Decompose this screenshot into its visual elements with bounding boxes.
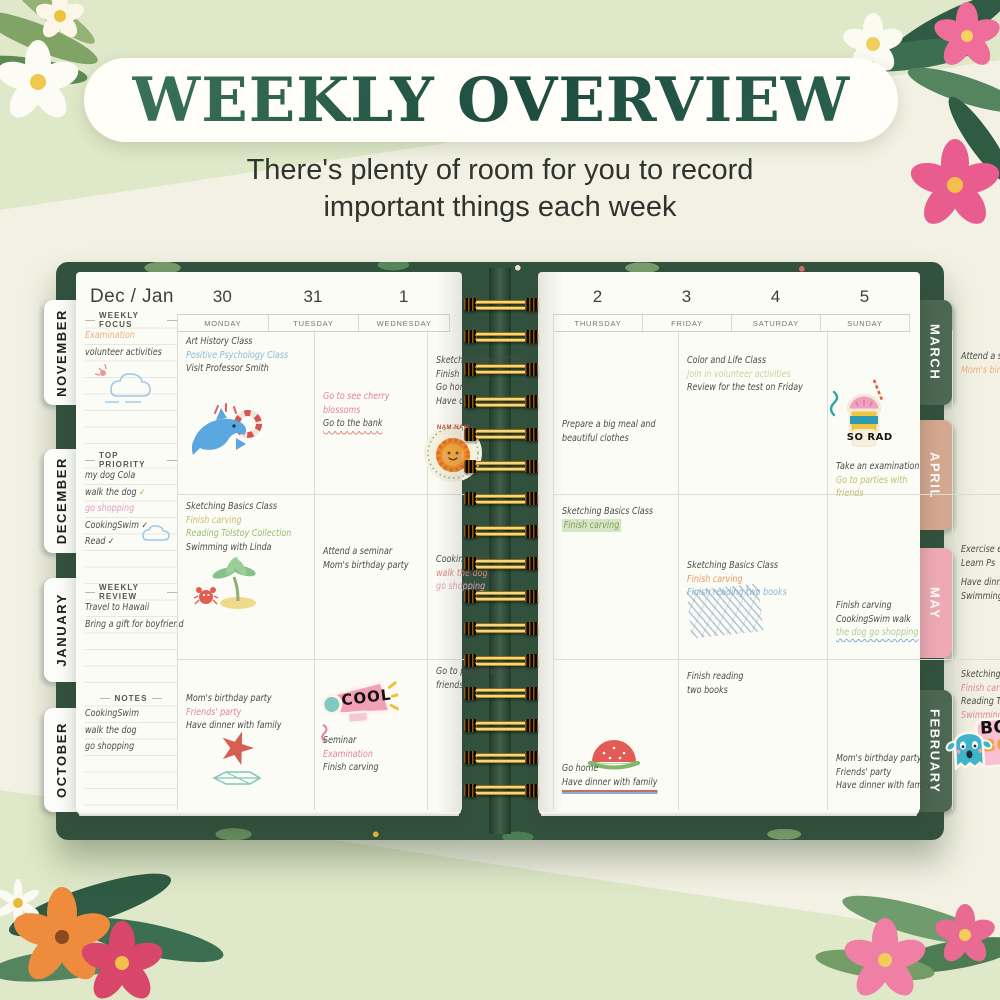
spiral-binding <box>464 297 538 798</box>
handwritten-entry: walk the dog ✓ <box>85 485 145 502</box>
handwritten-entry: Read ✓ <box>85 534 114 551</box>
date-number: 30 <box>177 287 268 307</box>
handwritten-entry: Finish reading <box>687 670 743 684</box>
day-name: TUESDAY <box>269 315 360 331</box>
handwritten-entry: Finish carving <box>562 519 621 533</box>
handwritten-entry: Examination <box>85 328 135 345</box>
cell-tuesday-row3: COOL SeminarExaminationFinish carving <box>315 660 429 810</box>
ghost-booh-sticker: BOOH! BOOH! <box>943 713 1000 778</box>
handwritten-entry: Go to parties with <box>836 474 907 488</box>
handwritten-entry: friends <box>436 679 464 693</box>
handwritten-entry: Sketching Basics Class <box>562 505 653 519</box>
section-weekly-focus: WEEKLY FOCUS Examinationvolunteer activi… <box>85 312 177 452</box>
cloud-doodle <box>137 520 171 542</box>
handwritten-entry: Mom's birthday party <box>961 364 1000 378</box>
so-rad-drink-sticker: SO RAD <box>828 378 908 458</box>
red-hibiscus-flower <box>78 921 166 1000</box>
tab-november: NOVEMBER <box>44 300 78 405</box>
handwritten-entry: Seminar <box>323 734 356 748</box>
handwritten-entry: Exercise every day <box>961 543 1000 557</box>
handwritten-entry: Finish carving <box>687 573 743 587</box>
handwritten-entry: Color and Life Class <box>687 354 766 368</box>
handwritten-entry: Mom's birthday party <box>186 692 272 706</box>
handwritten-entry: Finish carving <box>961 682 1000 696</box>
cell-saturday-row3: Mom's birthday partyFriends' partyHave d… <box>828 660 953 810</box>
section-top-priority: TOP PRIORITY my dog Colawalk the dog ✓go… <box>85 452 177 584</box>
cell-monday-row2: Sketching Basics ClassFinish carvingRead… <box>178 495 315 660</box>
cell-friday-row2: Sketching Basics ClassFinish carvingFini… <box>679 495 828 660</box>
date-row: 2 3 4 5 <box>553 284 909 310</box>
cell-thursday-row3: Go homeHave dinner with family <box>554 660 679 810</box>
cloud-sun-doodle <box>89 356 165 406</box>
handwritten-entry: CookingSwim <box>85 706 139 723</box>
weekly-grid-right: Prepare a big meal andbeautiful clothes … <box>553 330 910 810</box>
handwritten-entry: beautiful clothes <box>562 432 629 446</box>
tab-label: OCTOBER <box>54 722 69 798</box>
cell-sunday-row3: Sketching Basics ClassFinish carvingRead… <box>953 660 1000 810</box>
handwritten-entry: Examination <box>323 748 373 762</box>
handwritten-entry: Friends' party <box>186 706 241 720</box>
tab-october: OCTOBER <box>44 708 78 812</box>
day-name: THURSDAY <box>554 315 643 331</box>
date-number: 4 <box>731 287 820 307</box>
handwritten-entry: Positive Psychology Class <box>186 349 288 363</box>
date-number: 1 <box>358 287 449 307</box>
cell-sunday-row2: Exercise every dayLearn PsHave dinner wi… <box>953 495 1000 660</box>
handwritten-entry: Review for the test on Friday <box>687 381 803 395</box>
section-title: TOP PRIORITY <box>85 452 177 468</box>
handwritten-entry: Attend a seminar <box>323 545 392 559</box>
date-row: 30 31 1 <box>177 284 449 310</box>
subtitle: There's plenty of room for you to record… <box>0 152 1000 226</box>
date-number: 31 <box>268 287 359 307</box>
handwritten-entry: Finish carving <box>323 761 379 775</box>
tab-label: JANUARY <box>54 593 69 667</box>
handwritten-entry: Travel to Hawaii <box>85 600 149 617</box>
subtitle-line-1: There's plenty of room for you to record <box>0 152 1000 189</box>
day-name: FRIDAY <box>643 315 732 331</box>
white-hibiscus-flower <box>0 40 82 124</box>
handwritten-entry: CookingSwim walk <box>836 613 911 627</box>
handwritten-entry: blossoms <box>323 404 360 418</box>
cell-saturday-row1: SO RAD Take an examinationGo to parties … <box>828 330 953 495</box>
date-number: 3 <box>642 287 731 307</box>
handwritten-entry: Reading Tolstoy Collection <box>961 695 1000 709</box>
handwritten-entry: the dog go shopping <box>836 626 918 640</box>
cell-thursday-row2: Sketching Basics ClassFinish carving <box>554 495 679 660</box>
tab-label: DECEMBER <box>54 457 69 544</box>
dolphin-sticker <box>190 398 266 468</box>
handwritten-entry: Have dinner with family <box>562 776 657 791</box>
handwritten-entry: Mom's birthday party <box>323 559 409 573</box>
handwritten-entry: Swimming with Linda <box>186 541 272 555</box>
pink-hibiscus-flower <box>931 2 1000 70</box>
handwritten-entry: Sketching Basics Class <box>186 500 277 514</box>
planner-right-page: 2 3 4 5 THURSDAY FRIDAY SATURDAY SUNDAY … <box>538 272 920 812</box>
planner-left-page: Dec / Jan 30 31 1 MONDAY TUESDAY WEDNESD… <box>76 272 462 812</box>
cell-sunday-row1: Attend a seminarMom's birthday party <box>953 330 1000 495</box>
blue-scribble-doodle <box>687 583 764 638</box>
date-number: 5 <box>820 287 909 307</box>
subtitle-line-2: important things each week <box>0 189 1000 226</box>
day-name: WEDNESDAY <box>359 315 450 331</box>
handwritten-entry: go shopping <box>85 739 134 756</box>
handwritten-entry: Art History Class <box>186 335 252 349</box>
handwritten-entry: my dog Cola <box>85 468 135 485</box>
section-weekly-review: WEEKLY REVIEW Travel to HawaiiBring a gi… <box>85 584 177 690</box>
cell-saturday-row2: Finish carvingCookingSwim walkthe dog go… <box>828 495 953 660</box>
so-rad-sticker-label: SO RAD <box>841 432 899 443</box>
cell-tuesday-row1: Go to see cherryblossomsGo to the bank <box>315 330 429 495</box>
cool-megaphone-sticker: COOL <box>319 679 401 732</box>
date-number: 2 <box>553 287 642 307</box>
day-name: SUNDAY <box>821 315 910 331</box>
pink-hibiscus-flower <box>841 918 929 1000</box>
handwritten-entry: two books <box>687 684 728 698</box>
cell-monday-row1: Art History ClassPositive Psychology Cla… <box>178 330 315 495</box>
handwritten-entry: Take an examination <box>836 460 919 474</box>
handwritten-entry: Friends' party <box>836 766 891 780</box>
title-banner: WEEKLY OVERVIEW <box>84 58 898 142</box>
plumeria-flower <box>34 0 86 41</box>
handwritten-entry: Join in volunteer activities <box>687 368 791 382</box>
weekly-grid-left: Art History ClassPositive Psychology Cla… <box>177 330 450 810</box>
month-label: Dec / Jan <box>90 286 174 308</box>
handwritten-entry: Have dinner with family <box>961 576 1000 590</box>
cell-thursday-row1: Prepare a big meal andbeautiful clothes <box>554 330 679 495</box>
orange-hibiscus-flower <box>10 887 114 986</box>
section-title: WEEKLY REVIEW <box>85 584 177 600</box>
handwritten-entry: Reading Tolstoy Collection <box>186 527 291 541</box>
handwritten-entry: Finish carving <box>836 599 892 613</box>
page-title: WEEKLY OVERVIEW <box>132 65 851 136</box>
section-title: WEEKLY FOCUS <box>85 312 177 328</box>
cell-monday-row3: Mom's birthday partyFriends' partyHave d… <box>178 660 315 810</box>
tab-label: NOVEMBER <box>54 309 69 397</box>
tab-january: JANUARY <box>44 578 78 682</box>
cell-tuesday-row2: Attend a seminarMom's birthday party <box>315 495 429 660</box>
section-title: NOTES <box>85 690 177 706</box>
handwritten-entry: Visit Professor Smith <box>186 362 269 376</box>
handwritten-entry: Have dinner with family <box>836 779 931 793</box>
white-daisy-flower <box>0 879 41 927</box>
day-name: MONDAY <box>178 315 269 331</box>
tropical-decoration-bottom-left <box>0 845 260 1000</box>
starfish-doodle-sticker <box>206 726 266 788</box>
handwritten-entry: Mom's birthday party <box>836 752 922 766</box>
handwritten-entry: Go home <box>562 762 598 776</box>
handwritten-entry: Go to the bank <box>323 417 383 436</box>
tab-december: DECEMBER <box>44 449 78 553</box>
promo-image: WEEKLY OVERVIEW There's plenty of room f… <box>0 0 1000 1000</box>
handwritten-entry: Bring a gift for boyfriend <box>85 617 184 634</box>
cell-friday-row1: Color and Life ClassJoin in volunteer ac… <box>679 330 828 495</box>
cell-friday-row3: Finish readingtwo books <box>679 660 828 810</box>
handwritten-entry: go shopping <box>85 501 134 518</box>
island-crab-sticker <box>194 555 264 611</box>
day-name: SATURDAY <box>732 315 821 331</box>
handwritten-entry: Finish carving <box>186 514 242 528</box>
handwritten-entry: walk the dog <box>85 723 137 740</box>
handwritten-entry: Learn Ps <box>961 557 995 571</box>
handwritten-entry: Attend a seminar <box>961 350 1000 364</box>
handwritten-entry: Sketching Basics Class <box>961 668 1000 682</box>
section-notes: NOTES CookingSwimwalk the doggo shopping <box>85 690 177 810</box>
handwritten-entry: Prepare a big meal and <box>562 418 656 432</box>
handwritten-entry: Go to see cherry <box>323 390 389 404</box>
handwritten-entry: Swimming with Linda <box>961 590 1000 604</box>
handwritten-entry: Sketching Basics Class <box>687 559 778 573</box>
